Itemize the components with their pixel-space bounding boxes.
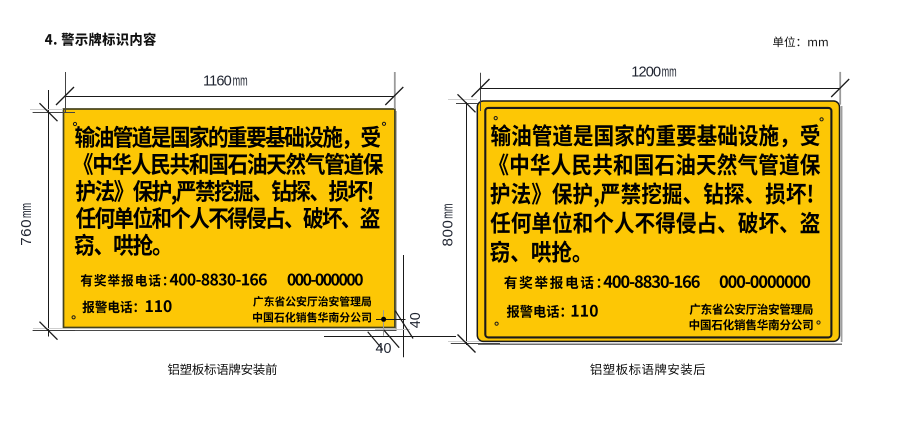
svg-text:40: 40 — [376, 341, 392, 357]
svg-text:1160: 1160 — [203, 74, 232, 90]
svg-text:800: 800 — [440, 220, 457, 247]
svg-text:760: 760 — [18, 219, 35, 246]
svg-text:mm: mm — [18, 203, 35, 218]
svg-text:mm: mm — [439, 204, 456, 219]
svg-text:mm: mm — [233, 72, 248, 89]
svg-text:40: 40 — [408, 312, 424, 328]
svg-text:mm: mm — [662, 63, 677, 80]
svg-text:1200: 1200 — [631, 65, 661, 81]
